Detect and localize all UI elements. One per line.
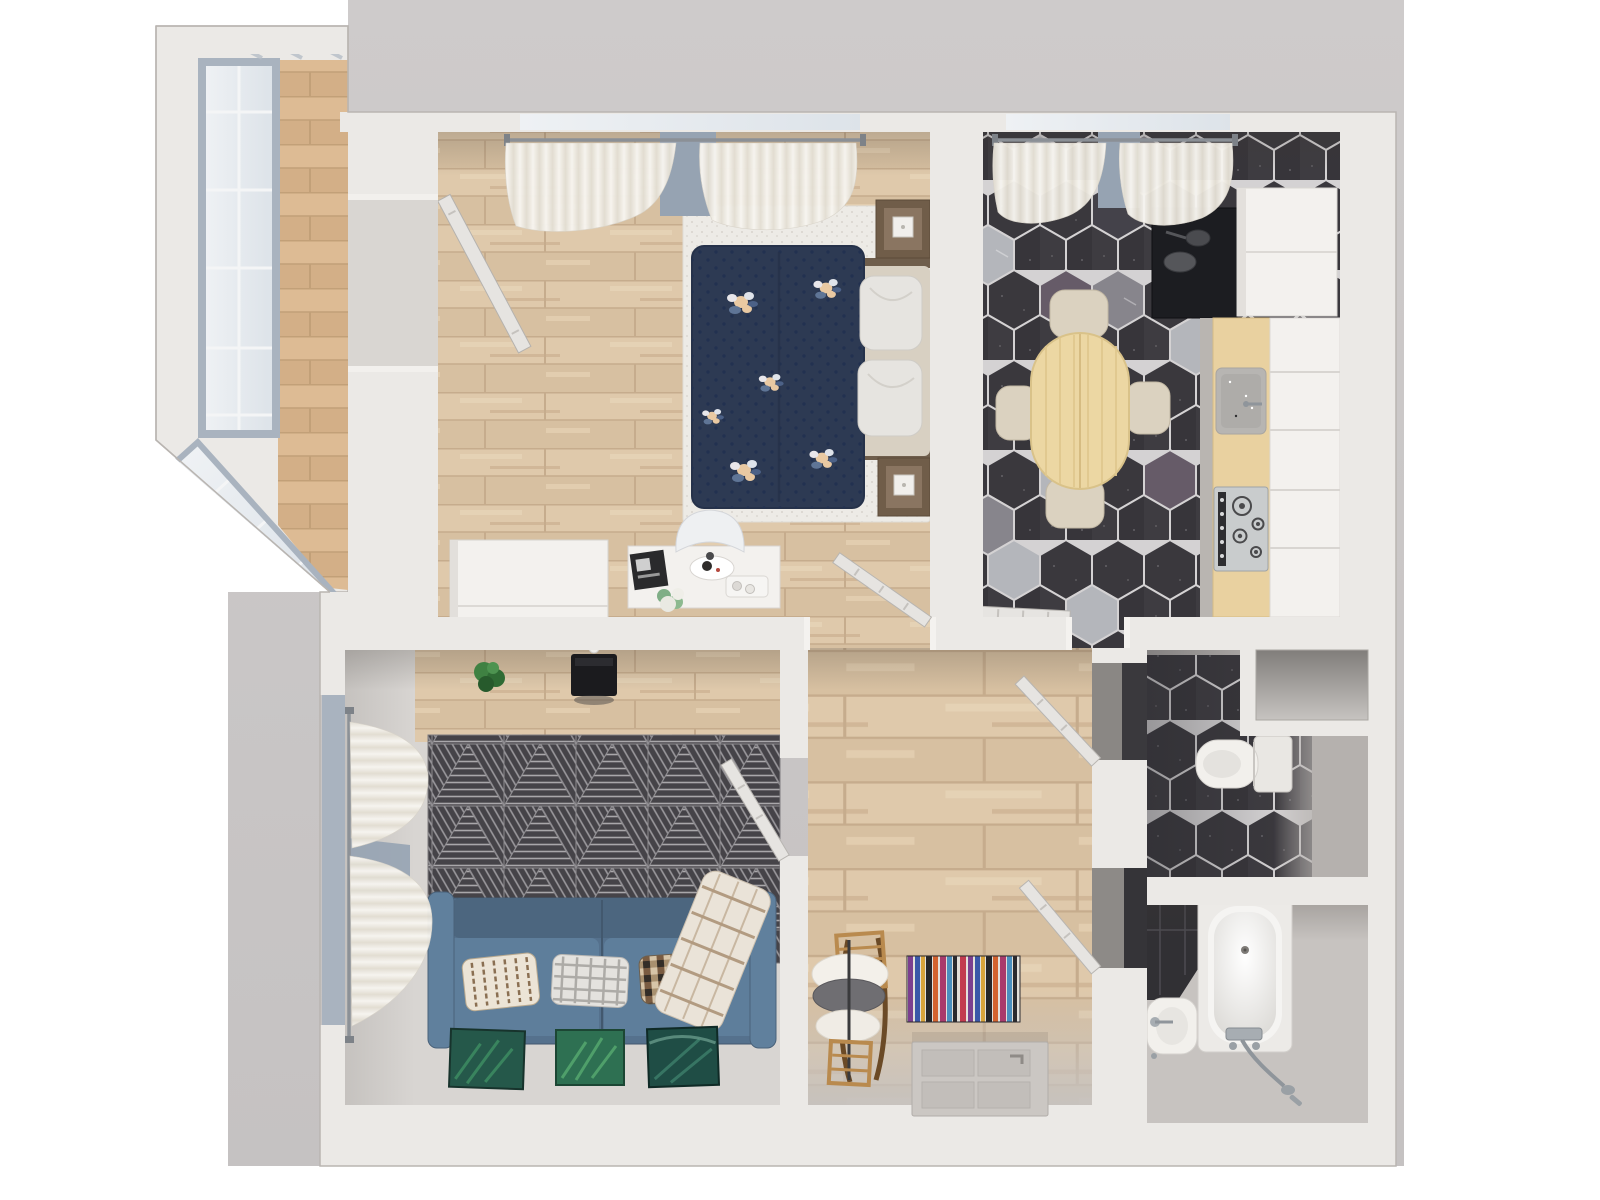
bedroom-window xyxy=(520,114,860,130)
bathroom-sink xyxy=(1147,998,1197,1059)
pot xyxy=(1164,252,1196,272)
balcony-floor xyxy=(278,60,348,590)
sofa-pillow-gingham xyxy=(551,954,630,1008)
kitchen-sink xyxy=(1216,368,1266,434)
desk xyxy=(628,546,780,612)
vent-niche xyxy=(1240,640,1368,736)
bedroom-kitchen-wall xyxy=(930,130,983,617)
cabinet-fronts xyxy=(1270,318,1340,617)
countertop xyxy=(1213,318,1270,617)
entry-door xyxy=(912,1032,1048,1116)
kitchen-window xyxy=(1006,114,1230,130)
leaning-pictures xyxy=(449,1027,719,1089)
dining-chair xyxy=(1126,382,1170,434)
living-window xyxy=(322,695,345,1025)
sofa-pillow-striped xyxy=(461,952,540,1011)
floor-plan-render xyxy=(0,0,1600,1200)
bed-pillow xyxy=(860,276,922,350)
pan xyxy=(1186,230,1210,246)
fridge xyxy=(1237,188,1337,316)
gas-hob xyxy=(1214,487,1268,571)
counter-side xyxy=(1200,318,1213,617)
toilet-tank xyxy=(1254,736,1292,792)
magazine xyxy=(630,550,669,590)
floor-plan xyxy=(0,0,1600,1200)
living-room xyxy=(344,643,780,1105)
nightstand-bottom xyxy=(878,458,930,516)
hallway-striped-rug xyxy=(907,956,1020,1022)
nightstand-top xyxy=(876,200,930,258)
balcony-door-threshold xyxy=(348,198,438,368)
duvet xyxy=(692,246,864,508)
dining-chair xyxy=(1050,290,1108,338)
bathroom xyxy=(1147,898,1368,1123)
bed-pillow xyxy=(858,360,922,436)
kitchen-counter xyxy=(1200,318,1340,617)
